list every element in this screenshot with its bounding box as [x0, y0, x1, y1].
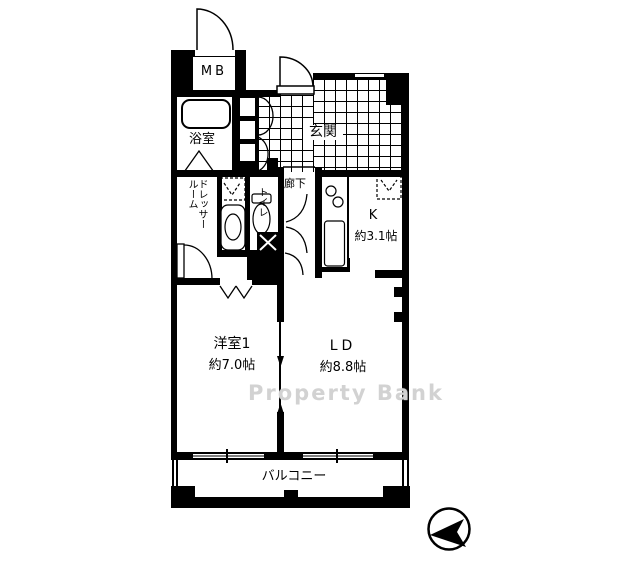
balcony-label: バルコニー: [254, 470, 334, 484]
dresser-room-label-line2: ルーム: [186, 179, 196, 245]
entrance-label: 玄関: [303, 125, 343, 140]
kitchen-label: K: [358, 209, 388, 223]
western-room1-label: 洋室1: [202, 337, 262, 352]
door-swing-icon: [197, 9, 233, 50]
door-swing-icon: [258, 97, 273, 171]
pipe-space-icon: [257, 232, 279, 253]
entrance-door-swing-icon: [277, 57, 314, 94]
compass-north-arrow-icon: [429, 509, 470, 550]
living-dining-size-label: 約8.8帖: [311, 361, 375, 375]
folding-door-icon: [182, 151, 216, 175]
meter-box-label: MB: [192, 65, 236, 79]
washbasin-icon: [221, 205, 245, 250]
dresser-room-label: ドレッサー ルーム: [186, 179, 206, 245]
kitchen-size-label: 約3.1帖: [348, 230, 404, 243]
living-dining-label: LD: [313, 339, 373, 354]
hallway-label: 廊下: [284, 178, 306, 190]
watermark-text: Property Bank: [248, 381, 444, 405]
western-room1-size-label: 約7.0帖: [200, 359, 264, 373]
dresser-room-label-line1: ドレッサー: [196, 179, 206, 245]
window-frame-lines: [193, 449, 373, 463]
refrigerator-space-icon: [377, 174, 401, 199]
kitchen-sink-icon: [321, 176, 348, 268]
door-swing-icon: [177, 244, 212, 279]
toilet-label: トイレ: [256, 187, 267, 231]
closet-folding-door-icon: [220, 286, 252, 298]
washing-machine-space-icon: [220, 178, 245, 200]
floor-plan: MB 浴室 玄関 ドレッサー ルーム トイレ 廊下 K 約3.1帖 洋室1 約7…: [0, 0, 640, 569]
bathroom-label: 浴室: [177, 133, 227, 147]
